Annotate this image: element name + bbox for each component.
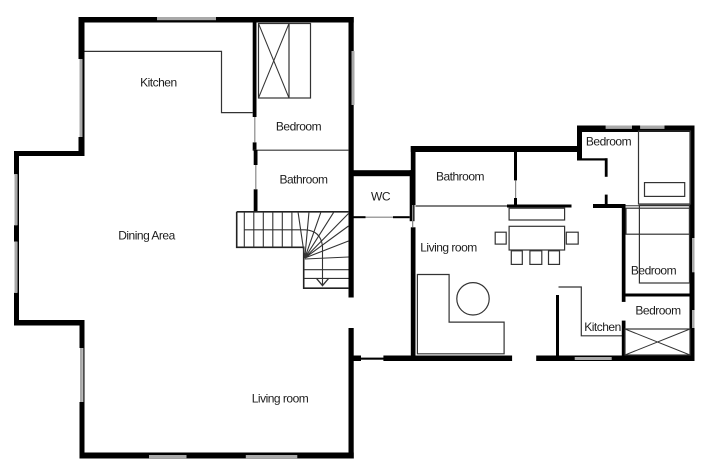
svg-text:Kitchen: Kitchen	[584, 320, 621, 334]
svg-text:Bedroom: Bedroom	[586, 135, 632, 149]
svg-text:Bathroom: Bathroom	[279, 173, 328, 187]
svg-text:Bedroom: Bedroom	[276, 120, 322, 134]
svg-text:Bathroom: Bathroom	[436, 170, 485, 184]
svg-text:Living room: Living room	[420, 241, 477, 255]
svg-text:Living room: Living room	[252, 392, 309, 406]
svg-text:Bedroom: Bedroom	[631, 264, 677, 278]
svg-text:WC: WC	[371, 190, 391, 204]
svg-text:Dining Area: Dining Area	[118, 229, 175, 243]
svg-text:Kitchen: Kitchen	[140, 76, 177, 90]
svg-text:Bedroom: Bedroom	[635, 304, 681, 318]
